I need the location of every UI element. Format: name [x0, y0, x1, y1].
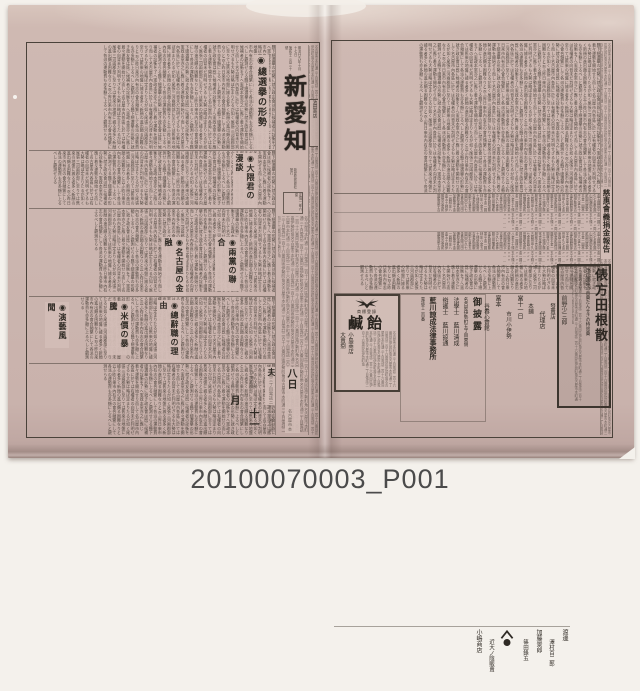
law-office-name: 藍川諒成法律事務所: [428, 297, 438, 419]
merchant-name: 渡邊: [560, 629, 568, 689]
trademark-wrap: [500, 629, 516, 689]
date-day: 八日: [285, 368, 296, 390]
issue-date: 明治廿九年十月十七日: [294, 46, 301, 74]
body-text-block: 縣下總選擧の形勢に就き政友會は既に候補者の詮衡を了へ憲政本黨亦之に應じ着々運動を…: [29, 45, 275, 150]
merchant-names: 前野少三郎 發賣店 代理店 本鋪 當十一日 市川小伊勢 富本 谷春心齋館 土屋聲…: [482, 294, 568, 418]
roster-row: 金五圓田中久七金參圓山田彌助金貳圓加藤軍平金一圓林庄八金五十錢伊藤常吉金貳圓服部…: [334, 194, 600, 212]
left-band-2: 縣下總選擧の形勢に就き政友會は既に候補者の詮衡を了へ憲政本黨亦之に應じ着々運動を…: [29, 150, 275, 208]
paper-top-edge-curl: [246, 0, 366, 17]
donation-report-headline: 慈惠會義捐金報告: [601, 189, 611, 259]
headline-election: ◉總選擧の形勢: [254, 55, 269, 150]
edge-text: 名古屋市本町通三丁目電話二百十六番同區伊勢町角名古屋市本町通三丁目電話二百十六番…: [601, 259, 611, 435]
merchant-name: 當十一日: [515, 295, 523, 417]
medicine-tagline: 改良賣藥の首藥たんせきの特效藥: [584, 268, 590, 404]
announcement-phone: 電話千二百番: [420, 297, 426, 419]
masthead-title: 新愛知: [276, 74, 310, 168]
left-band-4: 縣下總選擧の形勢に就き政友會は既に候補者の詮衡を了へ憲政本黨亦之に應じ着々運動を…: [29, 296, 275, 362]
edge-text: 名古屋市本町通三丁目電話二百十六番同區伊勢町角名古屋市本町通三丁目電話二百十六番…: [601, 43, 611, 189]
merchant-name: 代理店: [537, 311, 545, 417]
merchant-name: 近大ノ陰販賣: [487, 639, 495, 689]
eagle-logo-icon: [354, 296, 380, 309]
roster-row: 金五圓田中久七金參圓山田彌助金貳圓加藤軍平金一圓林庄八金五十錢伊藤常吉金貳圓服部…: [334, 231, 600, 250]
right-page: 縣下總選擧の形勢に就き政友會は既に候補者の詮衡を了へ憲政本黨亦之に應じ着々運動を…: [331, 40, 613, 438]
headline-parties: ◉兩黨の聯合: [215, 237, 239, 291]
bottom-fold-shadow: [8, 444, 634, 458]
newspaper-sheet-photo: 縣下總選擧の形勢に就き政友會は既に候補者の詮衡を了へ憲政本黨亦之に應じ着々運動を…: [8, 5, 634, 458]
seller-name: 小島商店: [346, 332, 353, 388]
masthead-dates: 第貳千三百三十號 明治廿九年十月十七日: [285, 46, 301, 74]
headline-finance: ◉名古屋の金融: [162, 237, 186, 296]
merchant-name: 本鋪: [526, 303, 534, 417]
right-band-1: 縣下總選擧の形勢に就き政友會は既に候補者の詮衡を了へ憲政本黨亦之に應じ着々運動を…: [334, 43, 600, 193]
archive-id-label: 20100070003_P001: [0, 464, 640, 495]
left-page: 縣下總選擧の形勢に就き政友會は既に候補者の詮衡を了へ憲政本黨亦之に應じ着々運動を…: [26, 42, 320, 438]
headline-rice-price: ◉米價の暴騰: [107, 301, 131, 355]
right-edge-strip: 名古屋市本町通三丁目電話二百十六番同區伊勢町角名古屋市本町通三丁目電話二百十六番…: [600, 43, 611, 435]
headline-okuma: ◉大隈君の漫談: [233, 153, 257, 208]
masthead-column: 第貳千三百三十號 明治廿九年十月十七日 新愛知 新愛知新聞社發行 定價一部六厘 …: [275, 45, 309, 435]
merchant-name: 澤村百二郎: [547, 639, 555, 689]
candy-product-name: 鹹飴: [348, 315, 386, 331]
publisher-line: 新愛知新聞社發行: [289, 168, 297, 190]
merchant-name: 小嶋商店: [474, 629, 482, 689]
body-text-block: 縣下總選擧の形勢に就き政友會は既に候補者の詮衡を了へ憲政本黨亦之に應じ着々運動を…: [334, 43, 600, 193]
price-seal: 定價一部六厘: [283, 192, 303, 214]
lawyer-name-2: 辯護士 藍川諒通: [440, 297, 449, 419]
trademark-icon: [500, 629, 514, 649]
date-column: 八日 名古屋市本町通三丁目電話二百十六番同區伊勢町角 十一月: [285, 367, 300, 433]
left-page-columns: 縣下總選擧の形勢に就き政友會は既に候補者の詮衡を了へ憲政本黨亦之に應じ着々運動を…: [29, 45, 275, 435]
headline-entertainment: ◉演藝風聞: [45, 302, 69, 348]
medicine-ad-text: 名古屋市本町通三丁目電話二百十六番同區伊勢町角名古屋市本町通三丁目電話二百十六番…: [572, 268, 582, 404]
left-band-3: 縣下總選擧の形勢に就き政友會は既に候補者の詮衡を了へ憲政本黨亦之に應じ着々運動を…: [29, 208, 275, 296]
merchant-name: 市川小伊勢: [504, 311, 512, 417]
issue-number: 第貳千三百三十號: [285, 46, 292, 74]
merchant-name: 發賣店: [548, 303, 556, 417]
roster-row: 金一圓〃〃〃〃〃〃同五十錢〃〃〃〃〃〃………………………………金一圓〃〃〃〃〃〃…: [334, 212, 600, 231]
headline-resignation: ◉總辭職の理由: [157, 300, 181, 362]
announcement-ad: 御披露 名古屋伊勢町五丁目東側 法學士 藍川清成 辯護士 藍川諒通 藍川諒成法律…: [400, 294, 486, 422]
lawyer-name-1: 法學士 藍川清成: [451, 297, 460, 419]
center-fold: [308, 5, 342, 458]
candy-ad: 商標登錄 鹹飴 名古屋市本町通三丁目電話二百十六番同區伊勢町角名古屋市本町通三丁…: [334, 294, 400, 392]
merchant-name: 篠田錄五: [521, 639, 529, 689]
merchant-name: 富本: [493, 295, 501, 417]
donation-roster: 金五圓田中久七金參圓山田彌助金貳圓加藤軍平金一圓林庄八金五十錢伊藤常吉金貳圓服部…: [334, 193, 600, 267]
merchant-name: 加藤景郎: [534, 629, 542, 689]
paper-speck: [13, 95, 17, 99]
bottom-ads-row: 渡邊 澤村百二郎 加藤景郎 篠田錄五 近大ノ陰販賣 小嶋商店: [334, 626, 570, 691]
announcement-address: 名古屋伊勢町五丁目東側: [462, 297, 468, 419]
merchant-name: 谷春心齋館: [482, 303, 490, 417]
left-band-1: 縣下總選擧の形勢に就き政友會は既に候補者の詮衡を了へ憲政本黨亦之に應じ着々運動を…: [29, 45, 275, 150]
corner-tear: [619, 447, 635, 459]
